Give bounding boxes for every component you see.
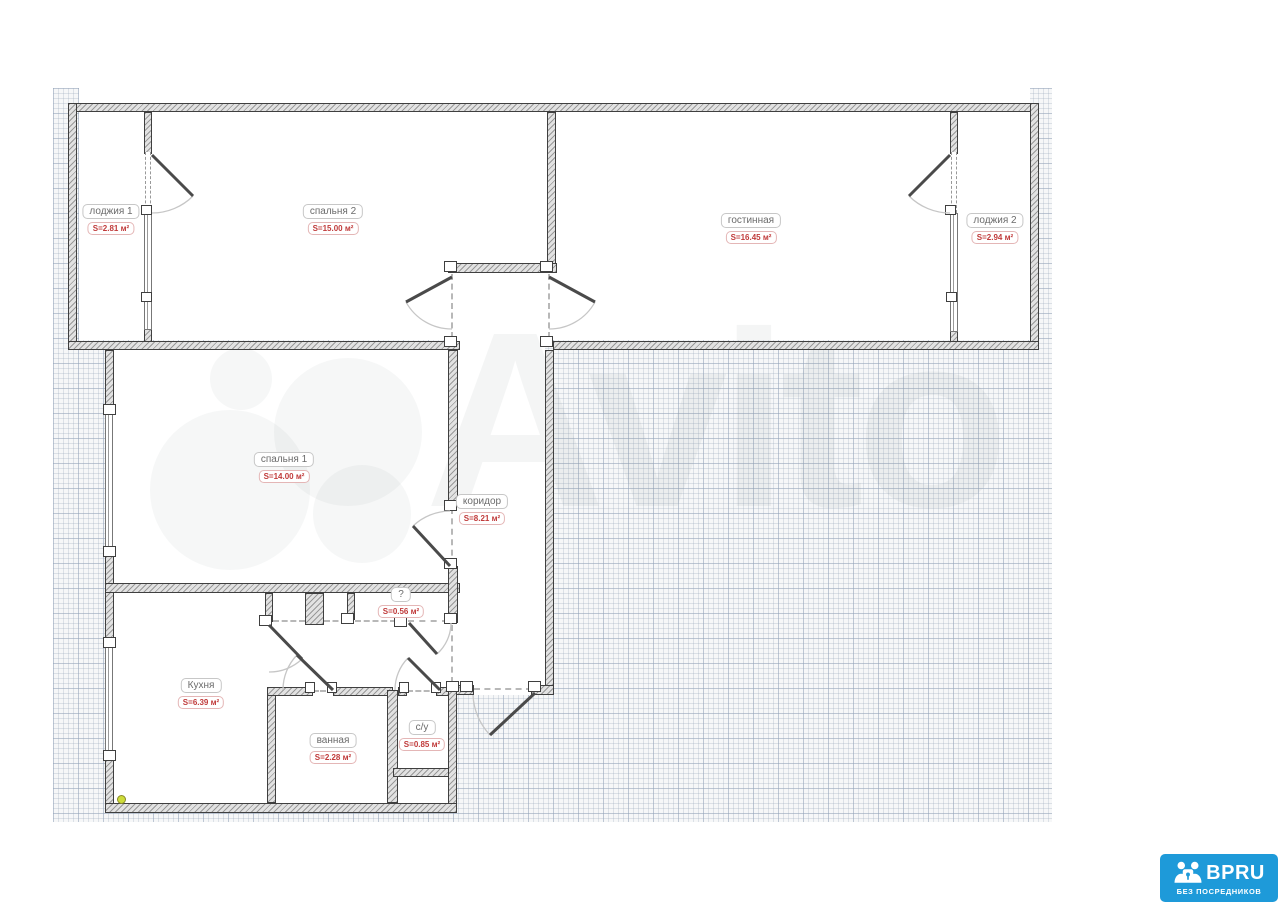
jamb [103,637,116,648]
jamb [444,558,457,569]
room-area: S=14.00 м² [259,470,310,483]
room-label-pantry: ? S=0.56 м² [378,587,424,618]
jamb [327,682,337,693]
room-area: S=15.00 м² [308,222,359,235]
room-name: с/у [409,720,436,735]
wall-band-bottom-right [553,341,1039,350]
jamb [259,615,272,626]
watermark-circle-4 [210,348,272,410]
room-name: лоджия 2 [966,213,1023,228]
room-name: коридор [456,494,508,509]
jamb [103,404,116,415]
outer-wall-bottom [105,803,457,813]
room-name: спальня 1 [254,452,314,467]
bpru-logo: BPRU БЕЗ ПОСРЕДНИКОВ [1160,854,1278,902]
jamb [141,292,152,302]
wall-wing-left-upper [105,350,114,410]
room-name: ванная [310,733,357,748]
room-area: S=8.21 м² [459,512,505,525]
watermark-text: Avito [425,295,1001,545]
wall-bath-left [267,687,276,803]
jamb [431,682,441,693]
room-label-bedroom1: спальня 1 S=14.00 м² [254,452,314,483]
window-bedroom1 [105,410,113,552]
opening-entry-door [474,688,532,691]
room-label-living: гостинная S=16.45 м² [721,213,781,244]
bpru-tagline: БЕЗ ПОСРЕДНИКОВ [1177,887,1262,896]
wall-duct-column [305,593,324,625]
room-name: Кухня [181,678,222,693]
jamb [341,613,354,624]
jamb [305,682,315,693]
wall-loggia1-divider-bottom [144,328,152,342]
wall-bedroom2-living-divider [547,112,556,265]
room-name: спальня 2 [303,204,363,219]
room-name: ? [391,587,411,602]
jamb [528,681,541,692]
jamb [444,261,457,272]
jamb [446,681,459,692]
jamb [103,750,116,761]
wall-right-edge-lower [448,687,457,813]
outer-wall-top [68,103,1039,112]
jamb [460,681,473,692]
room-area: S=0.56 м² [378,605,424,618]
wall-bath-top-right [333,687,393,696]
jamb [540,261,553,272]
room-label-bedroom2: спальня 2 S=15.00 м² [303,204,363,235]
jamb [444,336,457,347]
wall-wing-left-mid [105,550,114,647]
room-area: S=0.85 м² [399,738,445,751]
opening-neck-right [548,274,551,338]
wall-loggia2-divider-top [950,112,958,154]
watermark-circle-3 [313,465,411,563]
jamb [444,613,457,624]
jamb [945,205,956,215]
opening-neck-left [451,274,454,338]
jamb [141,205,152,215]
jamb [399,682,409,693]
bpru-logo-row: BPRU [1173,860,1265,886]
room-label-loggia1: лоджия 1 S=2.81 м² [82,204,139,235]
room-label-bath: ванная S=2.28 м² [310,733,357,764]
outer-wall-right [1030,103,1039,350]
wall-loggia1-divider-top [144,112,152,154]
room-name: лоджия 1 [82,204,139,219]
floorplan-page: Avito лоджия [0,0,1280,905]
balcony-doorway-loggia2 [951,152,957,213]
window-loggia1 [144,213,152,330]
wall-corridor-left-upper [448,350,458,505]
wall-bath-toilet-divider [387,690,398,803]
window-kitchen [105,645,113,756]
room-label-kitchen: Кухня S=6.39 м² [178,678,224,709]
room-name: гостинная [721,213,781,228]
bpru-brand-text: BPRU [1206,862,1265,885]
window-loggia2 [950,213,958,332]
room-area: S=2.94 м² [972,231,1018,244]
balcony-doorway-loggia1 [145,152,151,213]
room-area: S=2.28 м² [310,751,356,764]
jamb [540,336,553,347]
room-label-toilet: с/у S=0.85 м² [399,720,445,751]
room-area: S=2.81 м² [88,222,134,235]
room-label-corridor: коридор S=8.21 м² [456,494,508,525]
wall-band-bottom-left [68,341,460,350]
wall-corridor-right [545,350,554,687]
jamb [103,546,116,557]
opening-kitchen-door [273,620,305,623]
outer-wall-left [68,103,77,350]
opening-hall-corridor [451,625,454,683]
jamb [946,292,957,302]
opening-hall-3 [408,620,448,623]
opening-hall-2 [355,620,396,623]
room-area: S=6.39 м² [178,696,224,709]
room-area: S=16.45 м² [726,231,777,244]
entry-marker-dot [117,795,126,804]
margin-cover-top [79,86,1030,103]
people-lock-icon [1173,860,1203,886]
room-label-loggia2: лоджия 2 S=2.94 м² [966,213,1023,244]
